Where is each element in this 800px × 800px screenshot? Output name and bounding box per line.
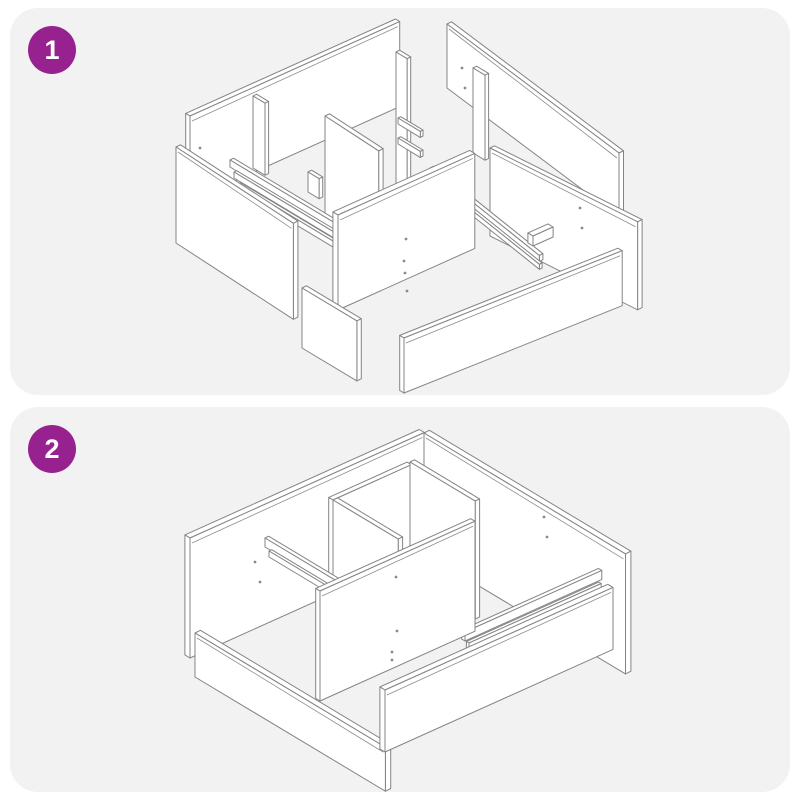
step-1-badge: 1 bbox=[28, 26, 76, 74]
step-1-card: 1 bbox=[10, 8, 790, 395]
step-2-badge: 2 bbox=[28, 425, 76, 473]
instruction-sheet: 1 2 bbox=[0, 0, 800, 800]
assembled-view-illustration bbox=[10, 407, 790, 792]
step-2-card: 2 bbox=[10, 407, 790, 792]
step-1-number: 1 bbox=[44, 35, 59, 65]
step-2-number: 2 bbox=[44, 434, 59, 464]
exploded-view-illustration bbox=[10, 8, 790, 395]
